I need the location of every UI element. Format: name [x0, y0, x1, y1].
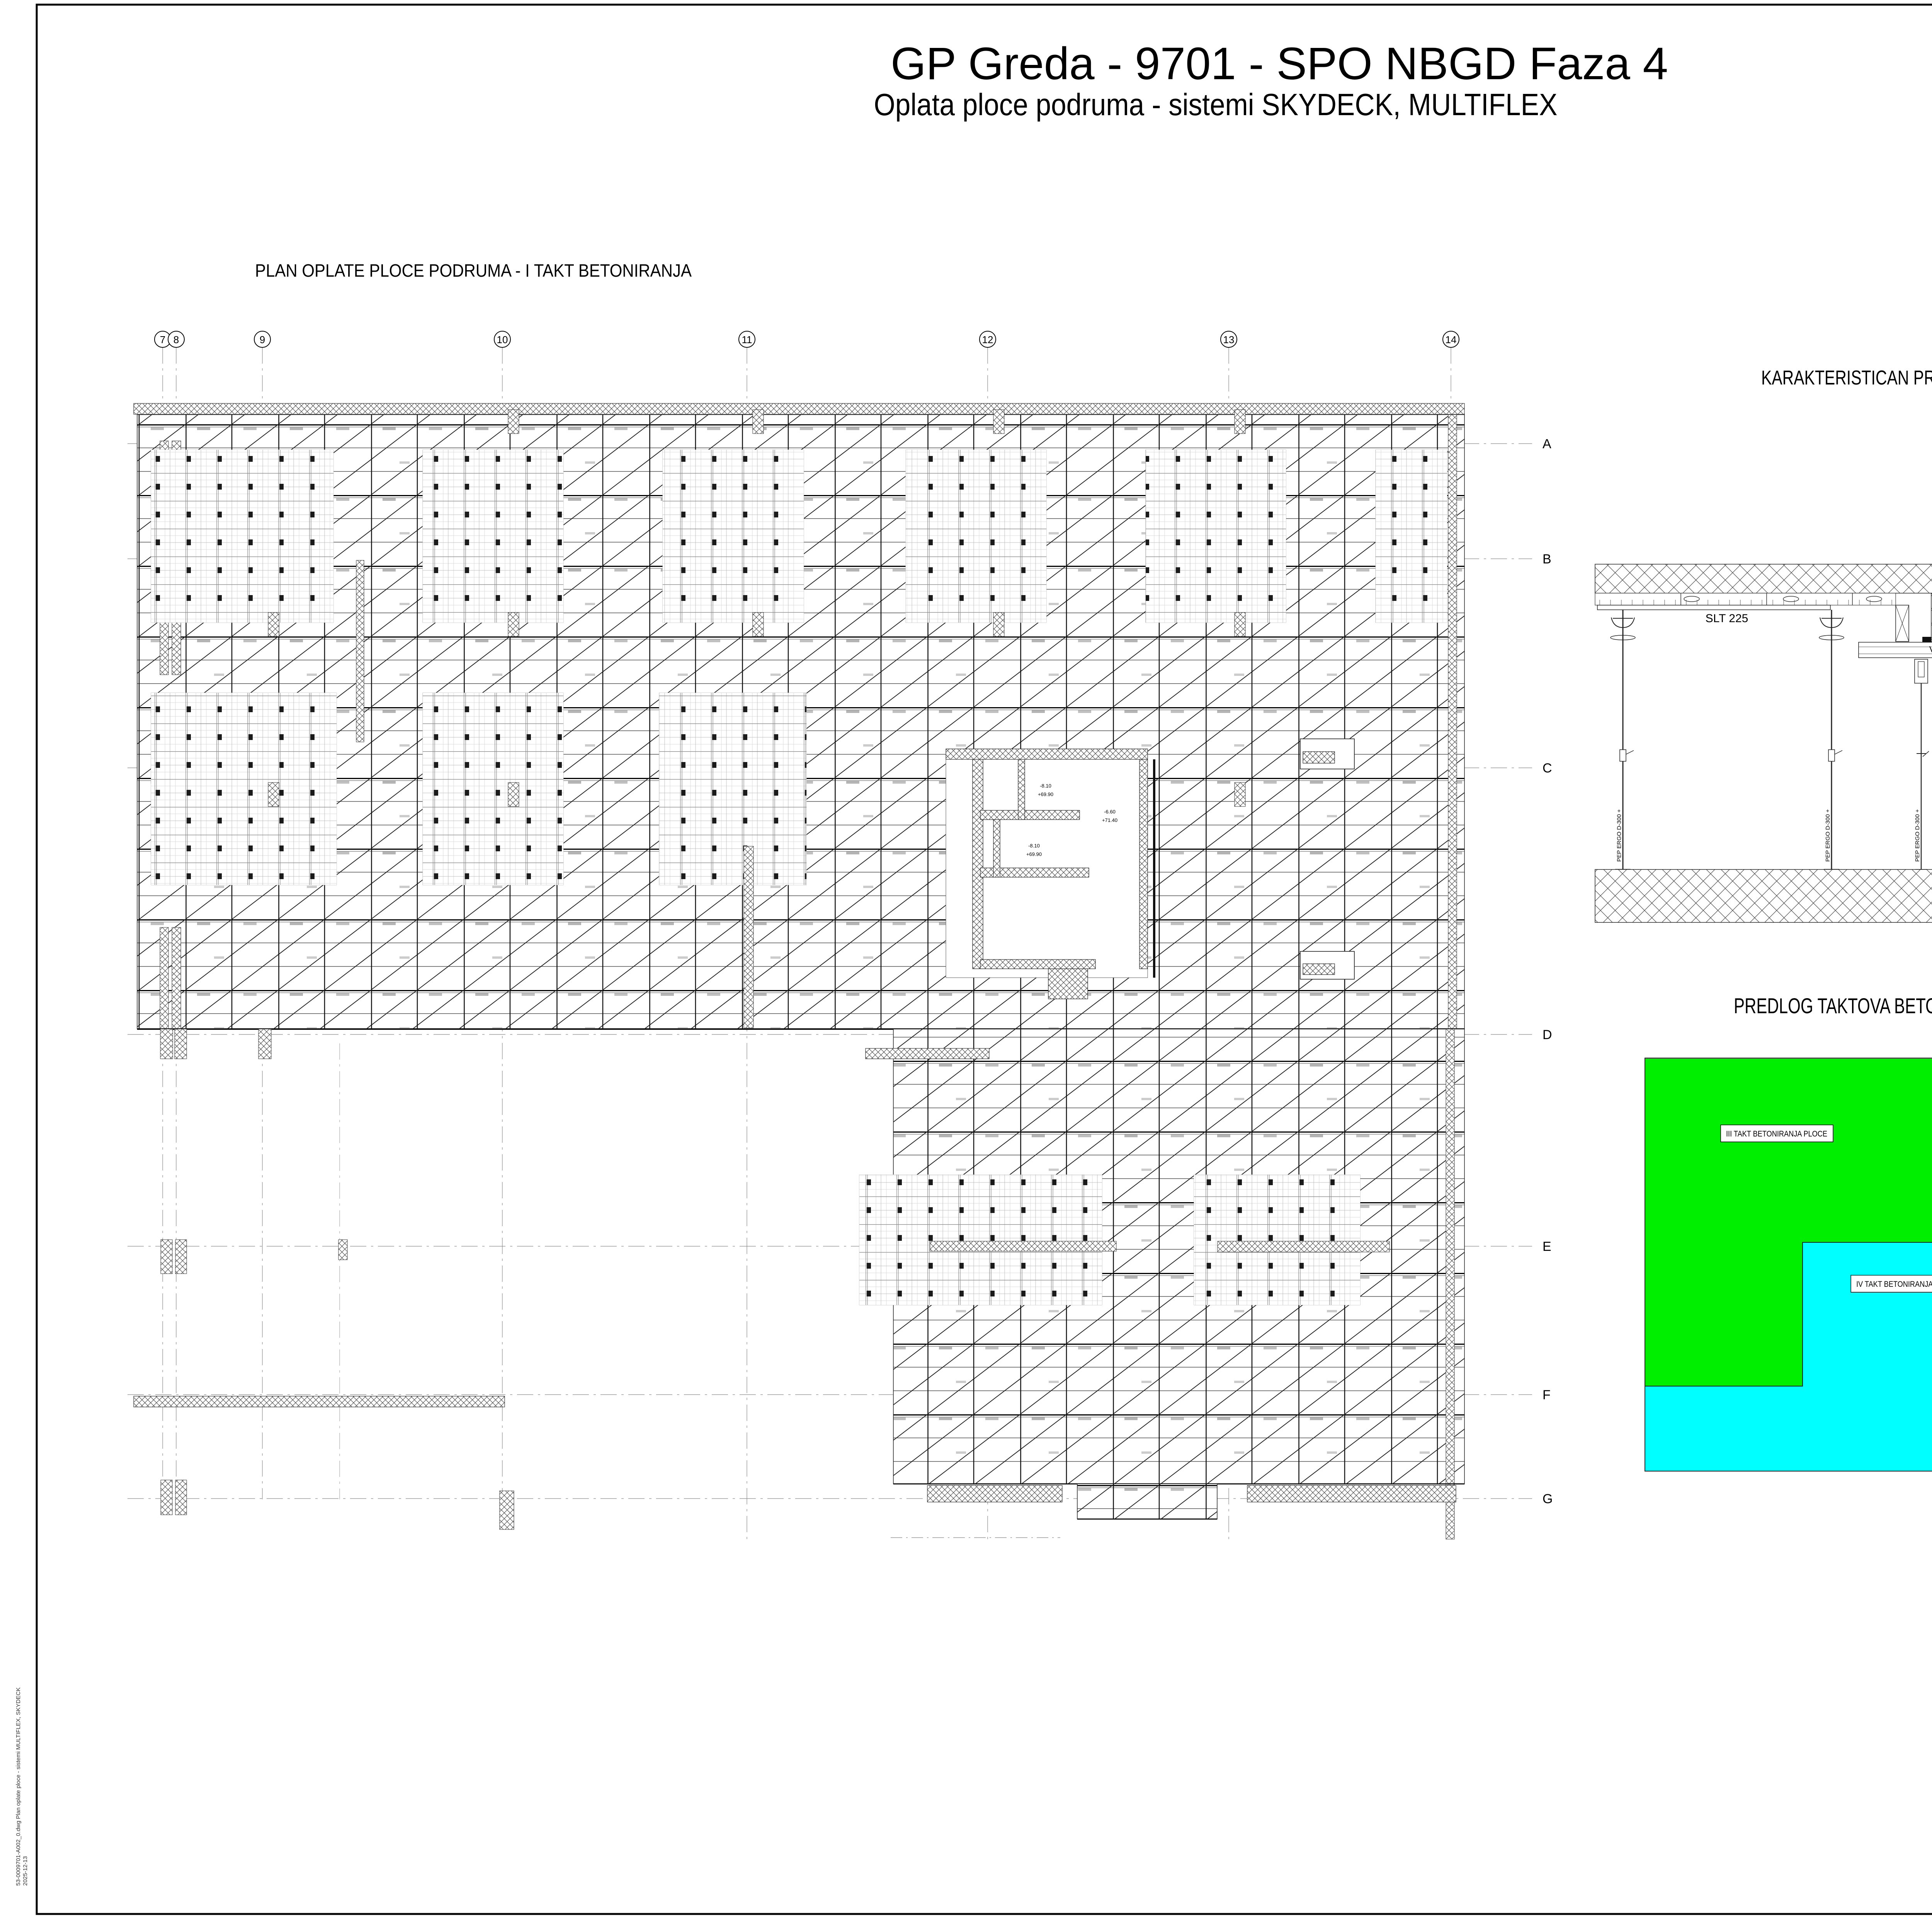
svg-text:B: B	[1543, 552, 1551, 567]
svg-text:F: F	[1543, 1388, 1551, 1402]
svg-text:7: 7	[160, 334, 165, 345]
svg-text:+69.90: +69.90	[1038, 791, 1053, 797]
svg-text:2025-12-13: 2025-12-13	[22, 1856, 29, 1886]
svg-text:12: 12	[982, 334, 993, 345]
svg-text:PEP ERGO D-300 +: PEP ERGO D-300 +	[1914, 809, 1921, 862]
svg-text:VT 20K l= 2,15m: VT 20K l= 2,15m	[1929, 645, 1932, 654]
svg-text:G: G	[1543, 1492, 1553, 1506]
svg-text:GP Greda - 9701 - SPO NBGD Faz: GP Greda - 9701 - SPO NBGD Faza 4	[891, 38, 1668, 89]
svg-text:E: E	[1543, 1239, 1551, 1254]
svg-text:III TAKT BETONIRANJA PLOCE: III TAKT BETONIRANJA PLOCE	[1726, 1130, 1827, 1138]
svg-text:Oplata ploce podruma - sistemi: Oplata ploce podruma - sistemi SKYDECK, …	[874, 87, 1558, 122]
svg-text:13: 13	[1223, 334, 1235, 345]
svg-text:+71.40: +71.40	[1102, 817, 1117, 823]
svg-text:IV TAKT BETONIRANJA PLOCE: IV TAKT BETONIRANJA PLOCE	[1856, 1280, 1932, 1289]
svg-text:A: A	[1543, 437, 1551, 451]
svg-text:8: 8	[173, 334, 179, 345]
svg-text:-6.60: -6.60	[1104, 809, 1116, 815]
svg-text:-8.10: -8.10	[1040, 783, 1051, 789]
svg-text:9: 9	[260, 334, 265, 345]
svg-text:KARAKTERISTICAN PRESEK: KARAKTERISTICAN PRESEK	[1761, 367, 1932, 389]
svg-text:53-0009701-A002_0.dwg Plan opl: 53-0009701-A002_0.dwg Plan oplate ploce …	[15, 1688, 22, 1886]
svg-text:11: 11	[742, 334, 752, 345]
svg-text:10: 10	[497, 334, 508, 345]
svg-text:PEP ERGO D-300 +: PEP ERGO D-300 +	[1616, 809, 1622, 862]
svg-text:D: D	[1543, 1028, 1552, 1042]
svg-text:PLAN OPLATE PLOCE PODRUMA - I: PLAN OPLATE PLOCE PODRUMA - I TAKT BETON…	[255, 260, 692, 281]
svg-text:SLT 225: SLT 225	[1706, 612, 1748, 625]
svg-text:-8.10: -8.10	[1028, 843, 1040, 849]
svg-text:C: C	[1543, 761, 1552, 776]
svg-text:+69.90: +69.90	[1026, 851, 1042, 857]
svg-text:PEP ERGO D-300 +: PEP ERGO D-300 +	[1825, 809, 1831, 862]
svg-text:14: 14	[1446, 334, 1457, 345]
svg-text:PREDLOG TAKTOVA BETONIRANJA PL: PREDLOG TAKTOVA BETONIRANJA PLOCE PODRUM…	[1734, 994, 1932, 1018]
